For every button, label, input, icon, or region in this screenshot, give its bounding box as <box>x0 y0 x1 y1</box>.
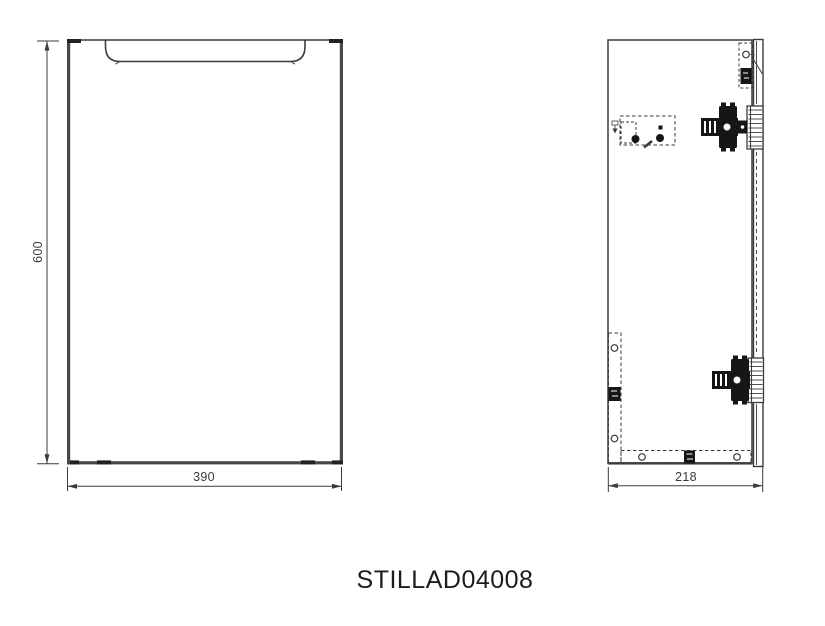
screw-hole <box>611 345 618 352</box>
depth-dimension-label: 218 <box>666 470 706 484</box>
hinge-top <box>701 103 763 152</box>
height-dimension-label: 600 <box>31 236 45 268</box>
hanger-hole <box>743 51 750 58</box>
edge-fittings <box>67 39 343 464</box>
bottom-rail-detail <box>621 451 751 464</box>
screw-hole <box>734 454 741 461</box>
dowel-hole <box>656 134 664 142</box>
dowel-hole <box>632 135 640 143</box>
screw-hole <box>611 435 618 442</box>
back-rail-detail <box>609 333 622 464</box>
handle-recess <box>106 41 306 65</box>
wall-hanger-detail <box>739 43 763 88</box>
width-dimension-label: 390 <box>184 470 224 484</box>
technical-drawing-page: 600 390 218 STILLAD04008 <box>0 0 825 626</box>
screw-hole <box>639 454 646 461</box>
hinge-bottom <box>712 356 764 405</box>
part-number-label: STILLAD04008 <box>310 566 580 595</box>
side-view <box>608 40 764 467</box>
cabinet-drawing <box>0 0 825 626</box>
front-view <box>67 39 343 464</box>
mounting-template-detail <box>612 116 675 148</box>
